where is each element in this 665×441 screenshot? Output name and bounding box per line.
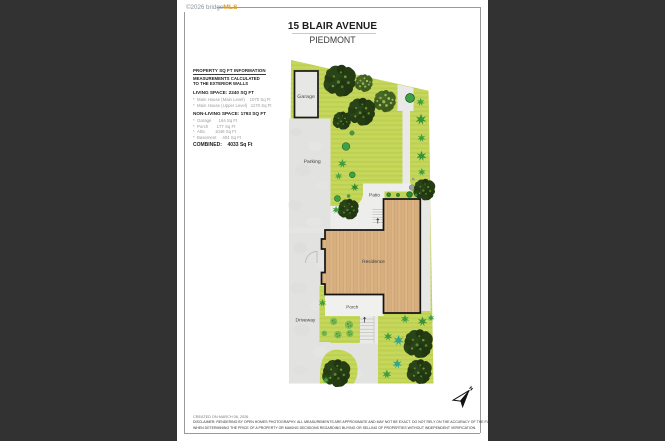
svg-text:Porch: Porch bbox=[346, 304, 358, 309]
svg-text:Patio: Patio bbox=[369, 192, 380, 198]
svg-text:Parking: Parking bbox=[304, 159, 321, 165]
svg-text:Garage: Garage bbox=[297, 94, 315, 100]
svg-text:Driveway: Driveway bbox=[296, 318, 316, 324]
svg-text:Residence: Residence bbox=[362, 259, 385, 265]
